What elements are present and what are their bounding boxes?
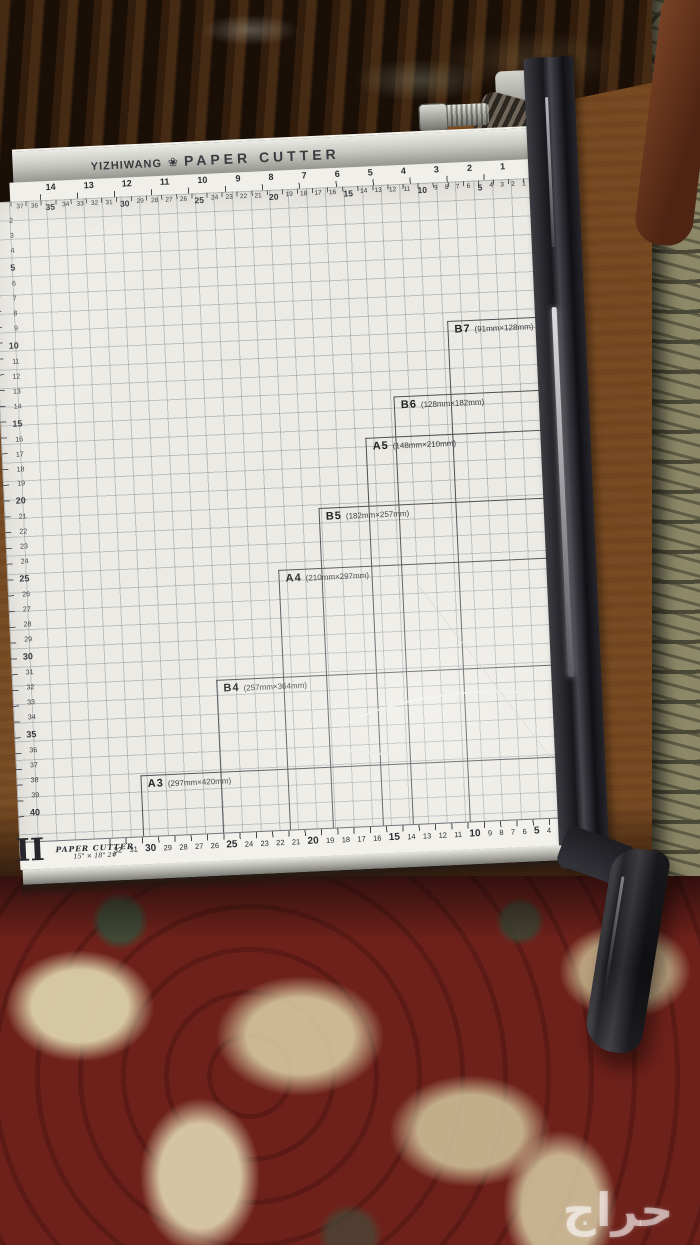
- cm-number: 25: [194, 195, 204, 205]
- handle-glint: [603, 876, 625, 995]
- size-label: B5 (182mm×257mm): [326, 507, 410, 523]
- cm-number: 2: [511, 181, 515, 191]
- size-dims: (148mm×210mm): [393, 439, 457, 451]
- cm-number: 28: [179, 842, 188, 851]
- size-dims: (128mm×182mm): [421, 397, 485, 409]
- cm-number: 23: [225, 194, 233, 204]
- inch-number: 3: [434, 164, 439, 174]
- paper-cutter: YIZHIWANG ❀ PAPER CUTTER 141312111098765…: [0, 84, 662, 913]
- cm-number: 14: [360, 187, 368, 197]
- cm-number: 30: [120, 198, 130, 208]
- base-roman-mark: II: [15, 835, 45, 867]
- size-label: B6 (128mm×182mm): [401, 395, 485, 411]
- inch-number: 5: [368, 167, 373, 177]
- cm-number: 11: [12, 358, 20, 365]
- size-label: A4 (210mm×297mm): [285, 569, 369, 585]
- cm-number: 32: [114, 845, 123, 854]
- cm-number: 29: [163, 843, 172, 852]
- size-code: B5: [326, 510, 343, 523]
- blade-edge-highlight: [552, 307, 574, 677]
- cm-number: 27: [23, 606, 31, 613]
- cm-number: 11: [403, 186, 410, 196]
- cm-number: 17: [16, 451, 24, 458]
- cm-number: 23: [20, 544, 28, 551]
- size-code: B4: [223, 682, 240, 695]
- cm-number: 34: [28, 714, 36, 721]
- cm-number: 32: [91, 200, 99, 210]
- cm-number: 23: [260, 839, 269, 848]
- cm-number: 25: [19, 574, 29, 584]
- size-label: B7 (91mm×128mm): [454, 320, 533, 336]
- inch-number: 12: [122, 178, 132, 188]
- cm-number: 4: [547, 826, 552, 835]
- cm-number: 37: [16, 203, 24, 213]
- cm-number: 12: [389, 186, 397, 196]
- inch-number: 4: [401, 166, 406, 176]
- cm-number: 36: [29, 747, 37, 754]
- size-dims: (210mm×297mm): [305, 571, 369, 583]
- size-label: A3 (297mm×420mm): [148, 774, 232, 790]
- cm-number: 19: [285, 191, 293, 201]
- cm-number: 15: [343, 188, 353, 198]
- inch-number: 11: [160, 176, 170, 186]
- inch-number: 8: [268, 172, 273, 182]
- cm-number: 33: [76, 200, 84, 210]
- inch-number: 6: [334, 169, 339, 179]
- cm-number: 22: [19, 529, 27, 536]
- cm-number: 29: [136, 198, 144, 208]
- clamp-bolt-hex-head: [418, 103, 448, 132]
- size-dims: (91mm×128mm): [474, 322, 533, 334]
- watermark-logo: حراج: [538, 1180, 698, 1240]
- cm-number: 7: [13, 295, 17, 302]
- cm-number: 8: [499, 828, 504, 837]
- cm-number: 4: [10, 248, 14, 255]
- cm-number: 19: [17, 481, 25, 488]
- cm-number: 16: [15, 436, 23, 443]
- blade-edge-highlight: [545, 97, 555, 247]
- inch-number: 2: [467, 163, 472, 173]
- cm-number: 2: [9, 218, 13, 225]
- cm-number: 31: [105, 199, 113, 209]
- cm-number: 29: [24, 636, 32, 643]
- cm-number: 17: [314, 190, 322, 200]
- size-code: A5: [372, 440, 389, 453]
- cm-number: 24: [245, 839, 254, 848]
- cm-number: 28: [151, 197, 159, 207]
- cm-number: 10: [469, 828, 481, 839]
- cm-number: 14: [14, 403, 22, 410]
- cm-number: 10: [417, 185, 427, 195]
- cm-number: 12: [438, 831, 447, 840]
- size-label: A5 (148mm×210mm): [372, 437, 456, 453]
- cm-number: 4: [489, 182, 493, 192]
- cm-number: 8: [445, 184, 449, 194]
- cm-number: 20: [307, 835, 319, 846]
- cm-number: 22: [240, 193, 248, 203]
- cm-number: 16: [373, 834, 382, 843]
- cm-number: 3: [10, 233, 14, 240]
- cm-number: 18: [342, 835, 351, 844]
- cm-number: 12: [12, 373, 20, 380]
- inch-number: 9: [235, 173, 240, 183]
- size-label: B4 (257mm×364mm): [223, 679, 307, 695]
- cm-number: 1: [522, 180, 526, 190]
- cm-number: 18: [16, 466, 24, 473]
- cm-number: 24: [211, 194, 219, 204]
- cm-number: 21: [254, 192, 262, 202]
- cm-number: 16: [329, 189, 337, 199]
- photo-paper-cutter-scene: YIZHIWANG ❀ PAPER CUTTER 141312111098765…: [0, 0, 700, 1245]
- cm-number: 24: [21, 559, 29, 566]
- cm-number: 21: [292, 837, 301, 846]
- size-code: A3: [148, 777, 165, 790]
- cm-number: 26: [22, 591, 30, 598]
- cm-number: 35: [45, 202, 55, 212]
- cm-number: 13: [423, 831, 432, 840]
- size-code: B6: [401, 398, 418, 411]
- cm-number: 31: [26, 669, 34, 676]
- cm-number: 6: [466, 183, 470, 193]
- cm-number: 15: [389, 832, 401, 843]
- cm-number: 13: [13, 388, 21, 395]
- brand-logo-icon: ❀: [168, 155, 179, 169]
- cm-number: 40: [30, 807, 40, 817]
- size-code: B7: [454, 323, 471, 336]
- cm-number: 21: [19, 514, 27, 521]
- cm-number: 8: [13, 310, 17, 317]
- cm-number: 9: [488, 828, 493, 837]
- cm-number: 30: [145, 843, 157, 854]
- cm-number: 15: [12, 418, 22, 428]
- cm-number: 37: [30, 762, 38, 769]
- cm-number: 27: [165, 196, 173, 206]
- cm-number: 35: [26, 729, 36, 739]
- left-cm-ruler: 2345678910111213141516171819202122232425…: [0, 218, 42, 818]
- cm-number: 7: [511, 827, 516, 836]
- cm-number: 5: [534, 825, 540, 836]
- cm-number: 10: [9, 340, 19, 350]
- cm-number: 33: [27, 699, 35, 706]
- cm-number: 19: [326, 836, 335, 845]
- inch-number: 1: [500, 161, 505, 171]
- cm-number: 9: [14, 325, 18, 332]
- cm-number: 34: [62, 201, 70, 211]
- cm-number: 32: [26, 684, 34, 691]
- cm-number: 22: [276, 838, 285, 847]
- cm-number: 26: [210, 841, 219, 850]
- cm-number: 6: [522, 827, 527, 836]
- cm-number: 28: [24, 621, 32, 628]
- cm-number: 17: [357, 834, 366, 843]
- inch-number: 14: [45, 182, 55, 192]
- cm-number: 5: [10, 262, 15, 272]
- cm-number: 20: [16, 496, 26, 506]
- cm-number: 13: [374, 187, 382, 197]
- size-code: A4: [285, 572, 302, 585]
- cutting-board: 3736353433323130292827262524232221201918…: [0, 176, 598, 870]
- cm-number: 25: [226, 839, 238, 850]
- cm-number: 20: [269, 192, 279, 202]
- cm-number: 31: [129, 845, 138, 854]
- cm-number: 9: [434, 184, 438, 194]
- cm-number: 18: [300, 190, 308, 200]
- cm-number: 11: [454, 830, 462, 839]
- cm-number: 7: [456, 183, 460, 193]
- inch-number: 10: [197, 175, 207, 185]
- cm-number: 39: [31, 792, 39, 799]
- cm-number: 5: [477, 182, 482, 192]
- cm-number: 30: [23, 651, 33, 661]
- cm-number: 6: [12, 280, 16, 287]
- brand-name: YIZHIWANG: [90, 157, 162, 172]
- product-name: PAPER CUTTER: [184, 145, 340, 168]
- cm-number: 14: [407, 832, 416, 841]
- cm-number: 36: [31, 202, 39, 212]
- size-dims: (182mm×257mm): [346, 509, 410, 521]
- cm-number: 3: [500, 181, 504, 191]
- cm-number: 38: [31, 777, 39, 784]
- inch-number: 7: [301, 170, 306, 180]
- cm-number: 27: [195, 842, 204, 851]
- size-dims: (297mm×420mm): [168, 776, 232, 788]
- cm-number: 26: [180, 196, 188, 206]
- inch-number: 13: [83, 180, 93, 190]
- size-dims: (257mm×364mm): [243, 681, 307, 693]
